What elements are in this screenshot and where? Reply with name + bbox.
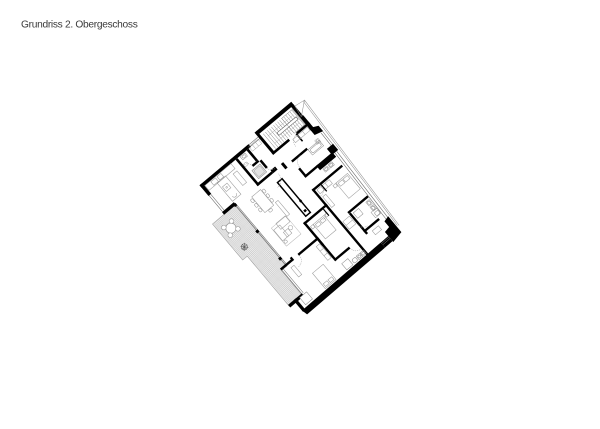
svg-text:Grundriss 2. Obergeschoss: Grundriss 2. Obergeschoss (21, 20, 138, 31)
